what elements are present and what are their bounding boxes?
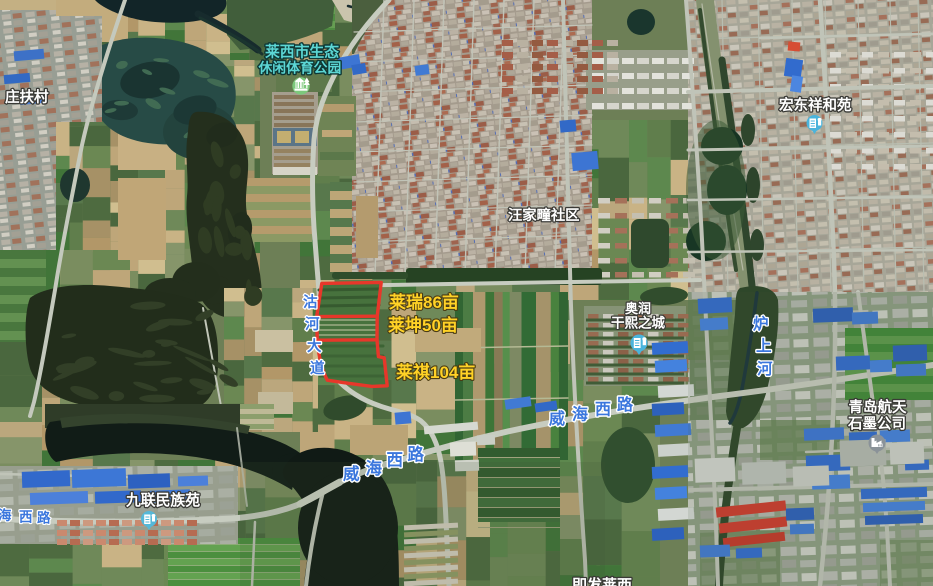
svg-text:干熙之城: 干熙之城 (611, 315, 665, 331)
svg-text:路: 路 (617, 395, 634, 414)
svg-text:上: 上 (756, 337, 772, 355)
svg-text:河: 河 (305, 315, 320, 333)
svg-text:西: 西 (595, 401, 611, 419)
svg-text:莱祺104亩: 莱祺104亩 (396, 362, 475, 382)
svg-text:道: 道 (310, 359, 325, 377)
svg-text:海: 海 (0, 507, 12, 523)
svg-text:休闲体育公园: 休闲体育公园 (258, 60, 342, 76)
svg-text:西: 西 (19, 510, 33, 525)
svg-text:庄扶村: 庄扶村 (5, 88, 49, 106)
svg-text:九联民族苑: 九联民族苑 (125, 491, 200, 509)
svg-text:宏东祥和苑: 宏东祥和苑 (779, 96, 852, 114)
svg-text:炉: 炉 (753, 314, 769, 333)
svg-text:莱坤50亩: 莱坤50亩 (388, 315, 458, 335)
svg-text:莱瑞86亩: 莱瑞86亩 (389, 292, 459, 312)
svg-text:威: 威 (549, 409, 565, 428)
svg-text:即发莱西: 即发莱西 (572, 576, 632, 586)
svg-text:青岛航天: 青岛航天 (849, 398, 907, 416)
svg-text:路: 路 (37, 510, 51, 526)
svg-text:莱西市生态: 莱西市生态 (265, 43, 339, 61)
svg-text:奥润: 奥润 (625, 301, 651, 316)
svg-text:河: 河 (757, 359, 773, 378)
svg-text:威: 威 (343, 464, 360, 484)
svg-text:石墨公司: 石墨公司 (847, 416, 906, 433)
svg-text:沽: 沽 (303, 293, 318, 311)
svg-text:西: 西 (387, 452, 404, 470)
svg-text:海: 海 (366, 458, 383, 478)
svg-text:海: 海 (572, 405, 588, 424)
svg-text:大: 大 (307, 337, 322, 355)
svg-text:汪家疃社区: 汪家疃社区 (508, 206, 579, 224)
svg-text:路: 路 (408, 444, 425, 464)
